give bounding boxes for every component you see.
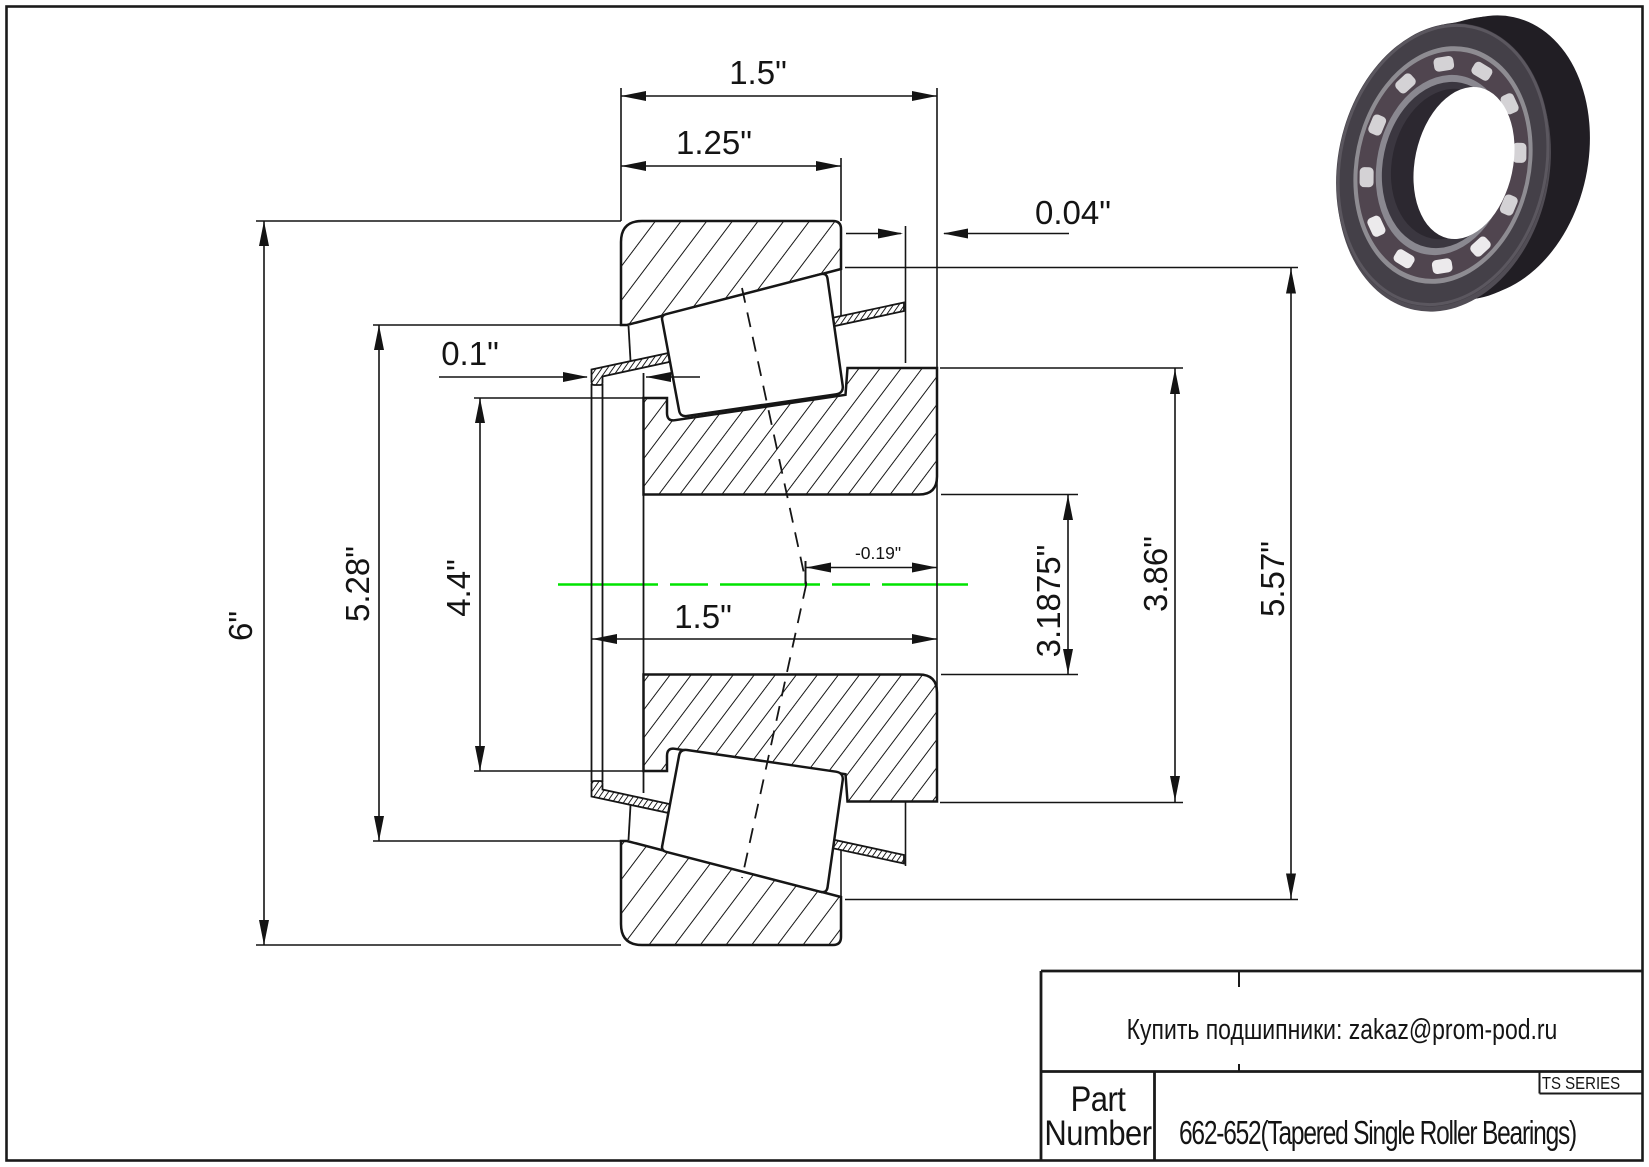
svg-text:662-652(Tapered Single Roller: 662-652(Tapered Single Roller Bearings) (1179, 1116, 1576, 1152)
svg-text:5.57": 5.57" (1254, 541, 1291, 617)
svg-text:1.5": 1.5" (729, 54, 787, 91)
svg-text:1.5": 1.5" (674, 598, 732, 635)
svg-text:-0.19": -0.19" (855, 543, 901, 563)
svg-text:1.25": 1.25" (676, 124, 752, 161)
svg-text:Купить подшипники: zakaz@prom-: Купить подшипники: zakaz@prom-pod.ru (1127, 1012, 1558, 1045)
svg-text:0.1": 0.1" (441, 335, 499, 372)
svg-text:0.04": 0.04" (1035, 194, 1111, 231)
svg-text:3.86": 3.86" (1137, 536, 1174, 612)
svg-text:Number: Number (1044, 1114, 1152, 1153)
svg-text:4.4": 4.4" (440, 559, 477, 617)
svg-text:6": 6" (222, 611, 259, 641)
svg-text:3.1875": 3.1875" (1030, 545, 1067, 658)
svg-text:5.28": 5.28" (339, 546, 376, 622)
svg-text:TS SERIES: TS SERIES (1542, 1073, 1620, 1094)
